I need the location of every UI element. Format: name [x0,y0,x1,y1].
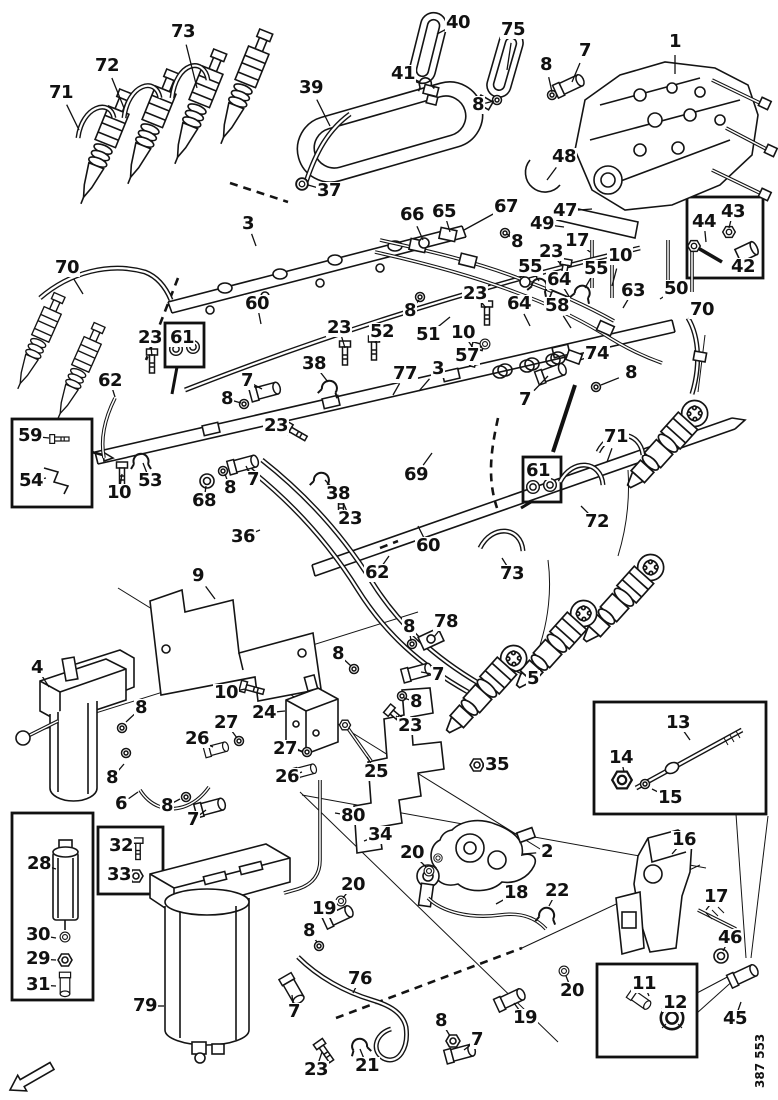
leader-line-22-105 [549,898,553,906]
leader-line-21-125 [360,1049,364,1058]
leader-line-63-28 [623,299,629,308]
leader-line-8-81 [126,714,134,722]
leader-line-67-13 [464,213,495,230]
leader-line-49-18 [552,225,564,227]
leader-line-8-92 [117,764,124,772]
leader-line-8-5 [549,77,552,92]
leader-line-69-60 [423,453,432,465]
inset-box-59-54 [12,419,92,507]
leader-line-8-110 [313,936,317,942]
leader-line-15-89 [652,789,662,794]
mounting-bracket [150,590,321,701]
leader-line-60-31 [259,313,261,324]
leader-line-27-83 [231,730,237,738]
injector-group-right [438,335,713,740]
drawing-strokes: 387 553 [9,10,777,1091]
figure-number: 387 553 [753,1034,767,1088]
leader-line-20-108 [343,891,349,898]
fuel-transfer-pump [417,821,535,907]
leader-line-58-32 [563,316,571,328]
leader-line-8-75 [344,659,351,666]
leader-line-11-116 [646,989,649,996]
leader-line-17-107 [706,903,712,910]
leader-line-6-94 [129,792,138,799]
leader-line-54-58 [38,478,46,480]
leader-line-29-113 [46,959,56,960]
leader-line-33-104 [125,875,132,876]
leader-line-55-25 [585,278,591,288]
leader-line-8-62 [225,474,228,482]
leader-line-62-47 [112,388,115,397]
leader-line-73-71 [502,558,508,567]
leader-line-72-67 [581,506,590,515]
leader-line-9-72 [206,586,215,599]
leader-line-13-87 [683,731,690,740]
leader-line-32-103 [127,846,134,847]
leader-line-38-43 [320,372,328,382]
leader-line-37-12 [308,185,320,188]
glow-plug [612,730,742,788]
leader-line-45-122 [738,1002,741,1011]
overflow-hose-loop [290,74,491,190]
leader-line-50-27 [660,294,669,300]
leader-line-44-51 [705,231,706,242]
leader-line-70-24 [74,279,83,294]
leader-line-24-82 [273,711,285,712]
leader-line-20-117 [566,976,569,984]
fuel-filter-small [16,650,134,801]
leader-line-64-30 [524,314,530,326]
leader-line-3-17 [252,234,256,246]
leader-line-17-19 [583,246,590,252]
leader-line-59-55 [39,437,49,438]
leader-line-70-33 [689,314,696,319]
fuel-filter-large [150,844,290,1063]
leader-line-8-45 [601,378,619,385]
leader-line-39-8 [317,100,330,126]
leader-line-53-57 [143,463,147,473]
u-hose-75 [484,28,526,100]
leader-line-8-123 [445,1028,450,1036]
direction-arrow-icon [10,1063,54,1091]
leader-line-48-11 [547,167,556,180]
fuel-rail-middle [95,320,675,464]
parts-diagram-page: 387 553 73407571872413971848376747656634… [0,0,778,1100]
leader-line-23-126 [319,1052,322,1062]
inset-box-13-14-15 [594,702,766,814]
inset-box-44-43-42 [687,197,763,278]
leader-line-8-95 [173,799,180,803]
leader-line-62-70 [382,556,389,565]
leader-line-80-97 [335,813,345,815]
leader-line-18-106 [496,898,507,904]
leader-line-77-46 [393,383,400,395]
u-hose-40 [407,10,450,86]
leader-line-30-111 [46,936,56,938]
leader-line-51-38 [438,317,450,327]
inset-box-11-12 [597,964,697,1057]
stepped-bracket [354,688,444,853]
leader-line-71-9 [67,105,79,130]
leader-line-36-68 [251,530,260,534]
exploded-parts-drawing: 387 553 [0,0,778,1100]
injector-group-left [9,27,276,422]
hand-primer-pump [53,840,78,930]
leader-line-2-101 [523,853,536,854]
leader-line-31-115 [46,985,56,986]
